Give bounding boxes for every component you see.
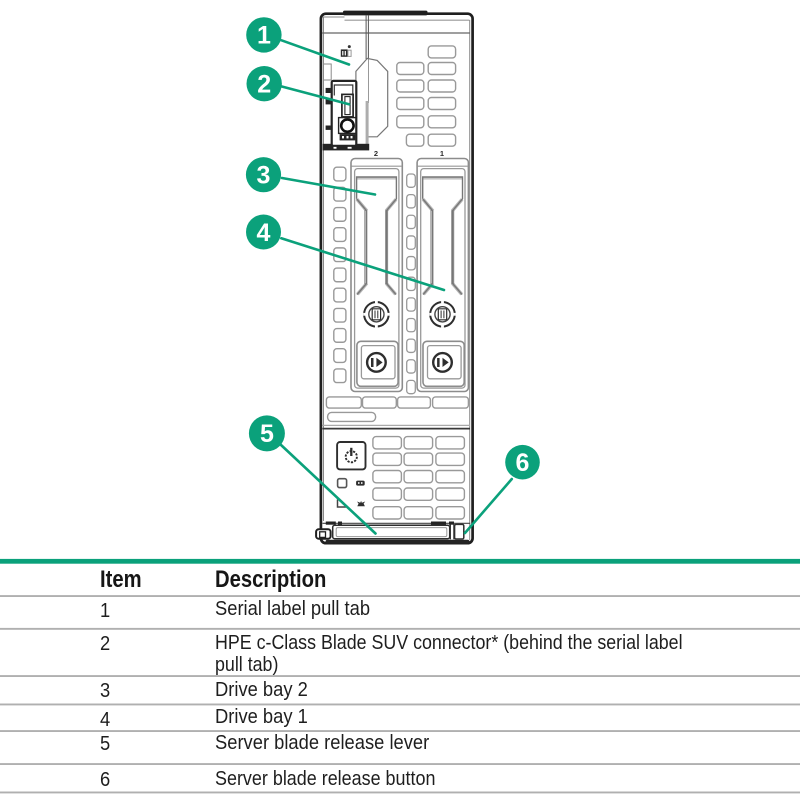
svg-text:6: 6 (516, 449, 530, 477)
svg-text:2: 2 (374, 149, 378, 158)
svg-text:2: 2 (257, 71, 271, 99)
svg-text:3: 3 (257, 162, 271, 190)
svg-text:1: 1 (440, 149, 444, 158)
svg-text:1: 1 (257, 22, 271, 50)
svg-text:5: 5 (260, 420, 274, 448)
svg-text:4: 4 (257, 219, 271, 247)
